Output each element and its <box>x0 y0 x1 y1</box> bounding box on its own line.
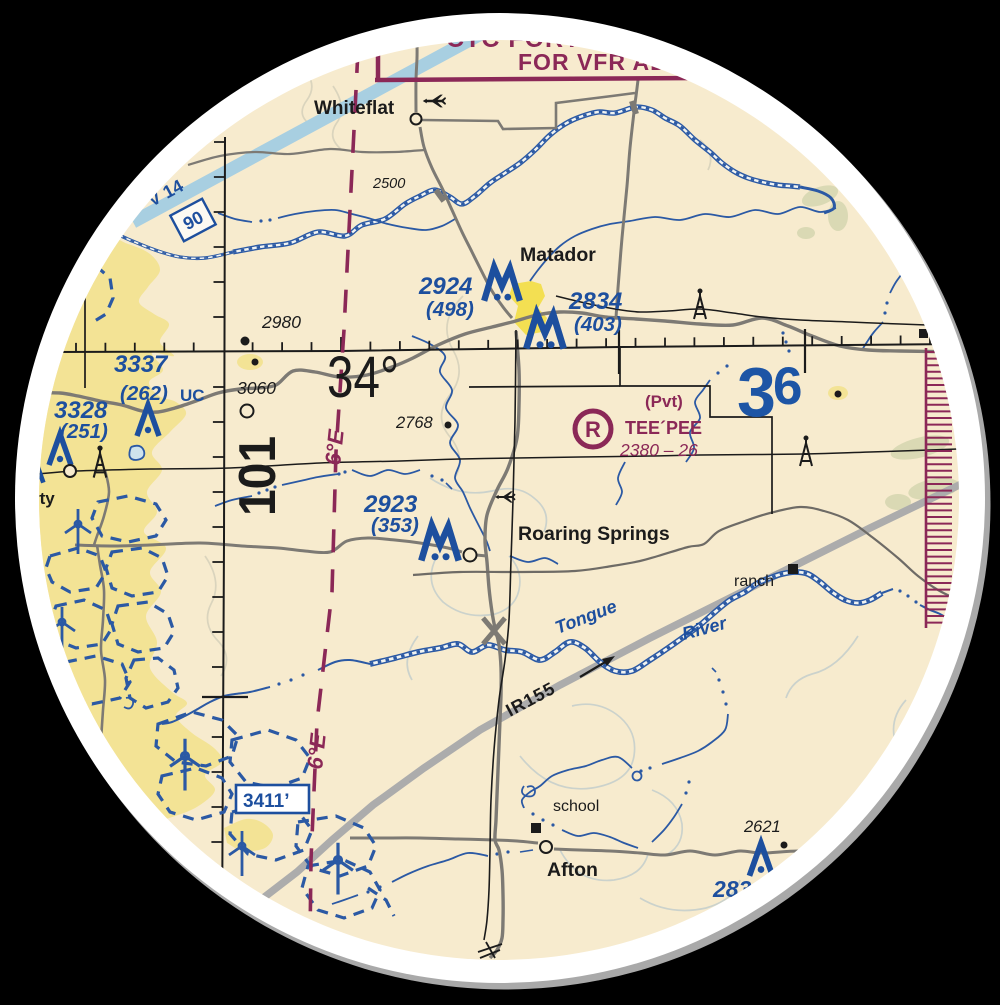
svg-text:(251): (251) <box>60 420 108 443</box>
svg-text:2834: 2834 <box>568 288 622 315</box>
svg-text:Roaring Springs: Roaring Springs <box>518 523 670 545</box>
svg-text:2924: 2924 <box>418 273 472 300</box>
svg-text:(403): (403) <box>574 313 622 336</box>
svg-text:(498): (498) <box>426 298 474 321</box>
svg-text:6°E: 6°E <box>302 731 331 770</box>
svg-text:6°E: 6°E <box>320 427 349 466</box>
svg-text:Matador: Matador <box>520 244 596 266</box>
svg-text:R: R <box>585 417 601 442</box>
svg-text:3411’: 3411’ <box>243 791 290 812</box>
svg-text:TEE´PEE: TEE´PEE <box>625 418 702 438</box>
svg-text:3: 3 <box>737 353 776 431</box>
svg-text:2980: 2980 <box>261 312 301 332</box>
svg-text:2768: 2768 <box>395 414 434 432</box>
svg-text:ranch: ranch <box>734 573 774 590</box>
svg-text:2621: 2621 <box>743 818 781 836</box>
svg-text:3060: 3060 <box>237 378 276 398</box>
svg-text:3337: 3337 <box>114 351 169 378</box>
svg-text:school: school <box>553 798 599 815</box>
svg-text:UC: UC <box>180 386 205 405</box>
svg-text:(262): (262) <box>120 382 168 405</box>
svg-text:2500: 2500 <box>372 176 405 192</box>
svg-text:(353): (353) <box>371 514 419 537</box>
svg-text:Afton: Afton <box>547 859 598 881</box>
svg-text:Whiteflat: Whiteflat <box>314 98 395 119</box>
svg-text:101: 101 <box>229 436 287 516</box>
svg-text:34°: 34° <box>327 345 399 410</box>
svg-text:6: 6 <box>773 357 802 416</box>
svg-text:(Pvt): (Pvt) <box>645 392 683 411</box>
svg-text:2380 – 26: 2380 – 26 <box>619 440 698 460</box>
